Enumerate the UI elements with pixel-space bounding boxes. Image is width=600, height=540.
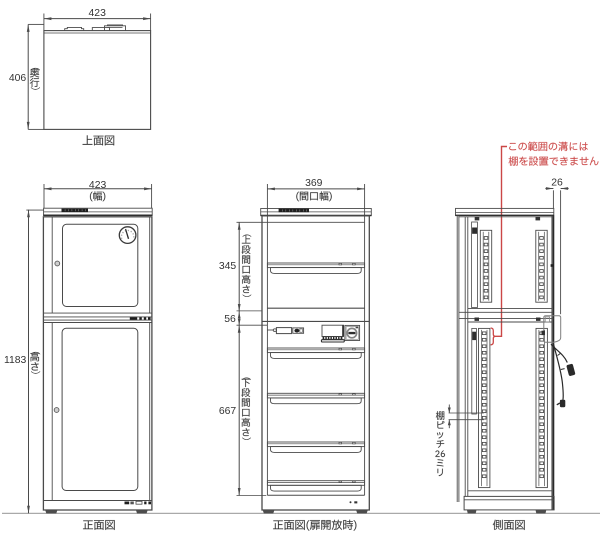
- svg-text:369: 369: [305, 178, 323, 189]
- svg-text:667: 667: [219, 406, 237, 417]
- svg-text:345: 345: [219, 261, 237, 272]
- svg-text:1183: 1183: [4, 355, 27, 366]
- svg-text:406: 406: [9, 73, 27, 84]
- svg-text:423: 423: [89, 8, 107, 19]
- svg-text:423: 423: [89, 180, 107, 191]
- svg-text:56: 56: [224, 314, 236, 325]
- svg-text:26: 26: [551, 178, 563, 189]
